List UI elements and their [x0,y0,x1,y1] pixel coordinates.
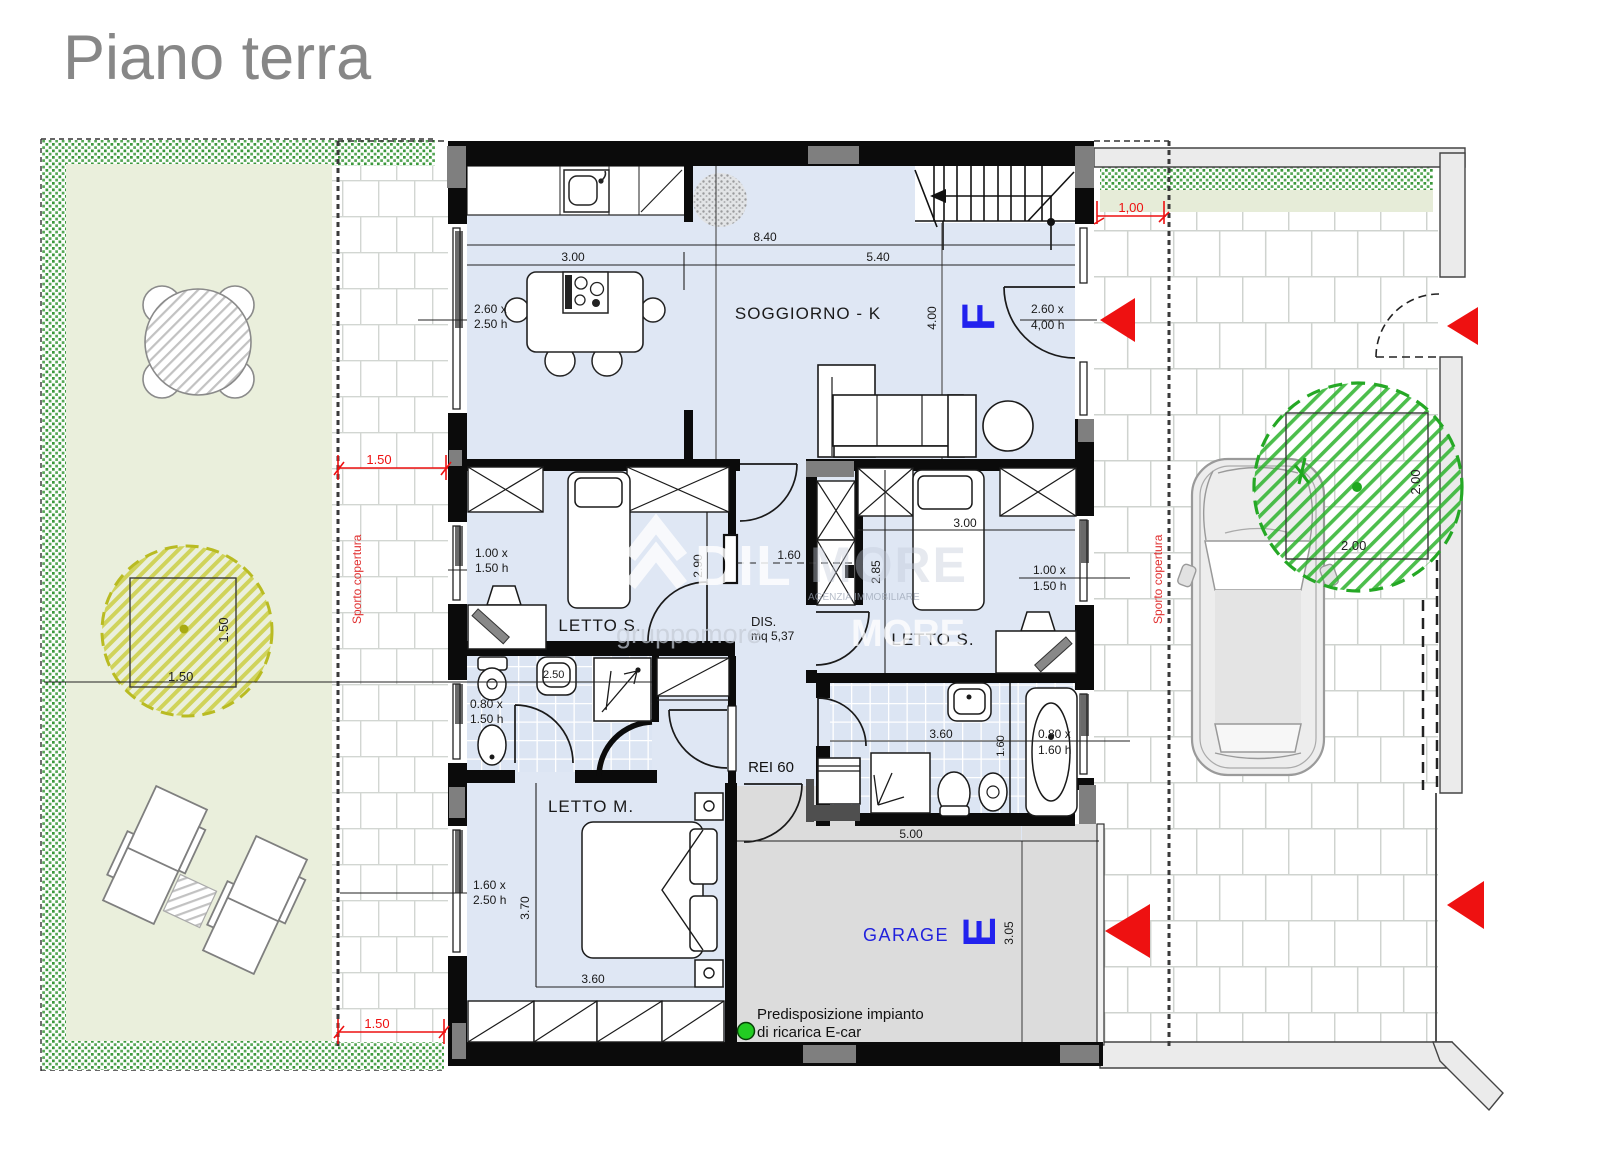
svg-text:MORE: MORE [851,613,965,655]
svg-text:3.00: 3.00 [561,250,585,264]
svg-text:3.60: 3.60 [581,972,605,986]
svg-text:3.70: 3.70 [518,896,532,920]
svg-text:2.00: 2.00 [1341,538,1366,553]
svg-text:GARAGE: GARAGE [863,925,949,945]
svg-text:8.40: 8.40 [753,230,777,244]
svg-text:4.00: 4.00 [925,306,939,330]
svg-text:1.60 h: 1.60 h [1038,743,1071,757]
svg-text:4,00 h: 4,00 h [1031,318,1064,332]
svg-text:1.50: 1.50 [216,617,231,642]
svg-text:0.80 x: 0.80 x [1038,727,1071,741]
svg-text:1.50: 1.50 [364,1016,389,1031]
svg-text:Sporto copertura: Sporto copertura [1151,534,1165,624]
svg-text:2.50: 2.50 [543,669,564,681]
svg-text:3.00: 3.00 [953,516,977,530]
svg-text:3.60: 3.60 [929,727,953,741]
svg-text:5.40: 5.40 [866,250,890,264]
svg-text:1.50 h: 1.50 h [470,712,503,726]
svg-text:1.00 x: 1.00 x [475,546,508,560]
svg-text:REI 60: REI 60 [748,759,794,776]
svg-text:2.50 h: 2.50 h [474,317,507,331]
svg-text:2.00: 2.00 [1408,469,1423,494]
svg-text:1.60 x: 1.60 x [473,878,506,892]
svg-text:LETTO M.: LETTO M. [548,797,634,816]
svg-text:MORE: MORE [810,537,968,593]
svg-text:2.60 x: 2.60 x [474,302,507,316]
svg-text:1.00 x: 1.00 x [1033,563,1066,577]
svg-text:1.50 h: 1.50 h [475,561,508,575]
svg-text:2.50 h: 2.50 h [473,893,506,907]
svg-text:1.60: 1.60 [995,735,1007,756]
svg-text:AGENZIA IMMOBILIARE: AGENZIA IMMOBILIARE [808,592,920,603]
svg-text:F: F [952,303,1004,331]
svg-text:E: E [954,917,1005,947]
svg-text:Sporto copertura: Sporto copertura [350,534,364,624]
svg-text:1.50 h: 1.50 h [1033,579,1066,593]
svg-text:1,00: 1,00 [1118,200,1143,215]
svg-text:5.00: 5.00 [899,827,923,841]
svg-text:2.60 x: 2.60 x [1031,302,1064,316]
svg-text:di ricarica E-car: di ricarica E-car [757,1024,861,1041]
svg-text:SOGGIORNO - K: SOGGIORNO - K [735,304,881,323]
svg-text:Predisposizione impianto: Predisposizione impianto [757,1006,924,1023]
svg-text:0.80 x: 0.80 x [470,697,503,711]
svg-text:1.50: 1.50 [366,452,391,467]
svg-text:Piano terra: Piano terra [63,23,372,93]
svg-text:DIL: DIL [695,534,793,598]
svg-text:gruppomore: gruppomore [616,619,762,649]
